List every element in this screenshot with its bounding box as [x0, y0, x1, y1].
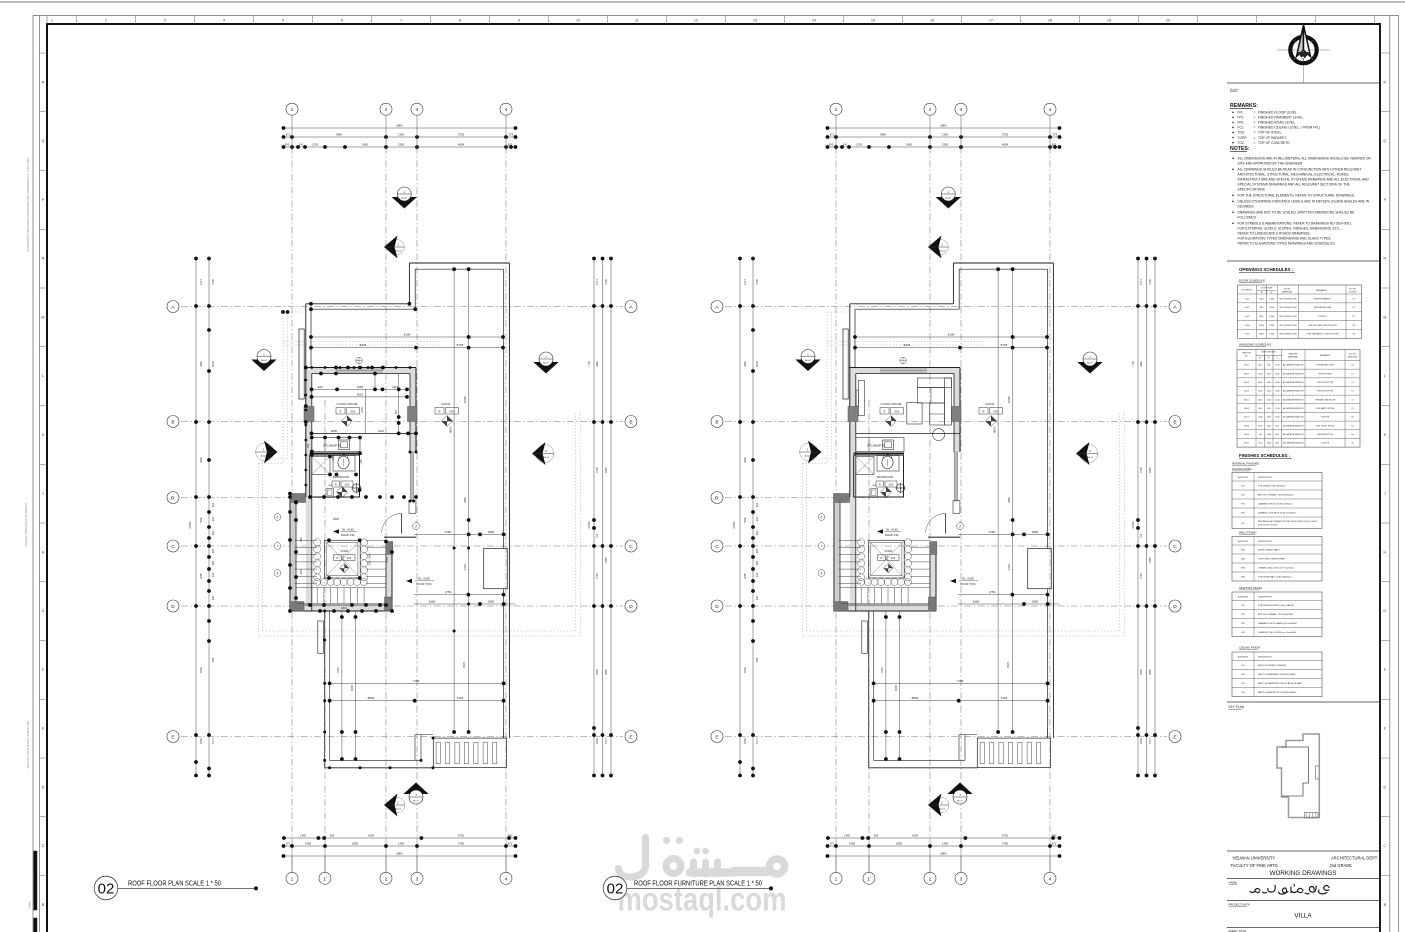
- svg-text:ALUMINIUM WINDOW: ALUMINIUM WINDOW: [1283, 364, 1304, 367]
- svg-text:1500: 1500: [1259, 325, 1265, 327]
- svg-text:17: 17: [989, 18, 993, 22]
- svg-text:2000: 2000: [1258, 382, 1263, 384]
- svg-text:03: 03: [1351, 443, 1354, 445]
- svg-text:=: =: [1254, 131, 1256, 135]
- svg-text:TOP OF PARAPET.: TOP OF PARAPET.: [1258, 136, 1287, 140]
- svg-text:DESCRIPTION: DESCRIPTION: [1258, 596, 1272, 598]
- svg-text:NAME:: NAME:: [1229, 881, 1238, 885]
- svg-text:MATERIAL: MATERIAL: [1282, 291, 1293, 294]
- svg-text:ARCHITECTURAL, STRUCTURAL, M: ARCHITECTURAL, STRUCTURAL, MECHANICAL, E…: [1238, 173, 1350, 177]
- svg-text:LIGHT GREY CEMENT PAINT: LIGHT GREY CEMENT PAINT: [1258, 558, 1286, 561]
- svg-text:(FOR ROOF FLOOR): (FOR ROOF FLOOR): [1258, 524, 1278, 526]
- svg-text:D-05: D-05: [1245, 334, 1251, 336]
- svg-text:02: 02: [1351, 425, 1354, 427]
- svg-text:NOTES:: NOTES:: [1230, 146, 1250, 152]
- svg-text:ACRONYM: ACRONYM: [1238, 476, 1249, 479]
- svg-text:ACRONYM: ACRONYM: [1238, 595, 1249, 598]
- svg-text:C02: C02: [1241, 674, 1246, 676]
- svg-text:TOC: TOC: [1238, 141, 1246, 145]
- svg-text:THE BEDROOMS: THE BEDROOMS: [1313, 307, 1331, 309]
- svg-text:D-01: D-01: [1245, 298, 1251, 300]
- svg-text:FINISHES SCHEDULES :: FINISHES SCHEDULES :: [1239, 453, 1291, 458]
- svg-text:600: 600: [1259, 365, 1263, 367]
- svg-text:TOP OF CONCRETE.: TOP OF CONCRETE.: [1258, 141, 1291, 145]
- svg-text:TOS: TOS: [1238, 131, 1246, 135]
- svg-text:FOR TERRACE, LIVING ROOM: FOR TERRACE, LIVING ROOM: [1307, 333, 1339, 336]
- svg-text:2: 2: [105, 18, 107, 22]
- svg-text:1700: 1700: [1275, 408, 1280, 410]
- svg-text:LAMINATED WOOD BASE (10)cm HEI: LAMINATED WOOD BASE (10)cm HEIGHT: [1258, 622, 1298, 625]
- svg-text:L: L: [42, 374, 44, 378]
- svg-text:WOODEN DOOR: WOODEN DOOR: [1279, 325, 1297, 327]
- svg-text:1950: 1950: [357, 385, 364, 389]
- svg-text:W04: W04: [1241, 577, 1246, 579]
- svg-text:04: 04: [1351, 365, 1354, 367]
- svg-text:800: 800: [1259, 408, 1263, 410]
- svg-text:F03: F03: [1241, 504, 1245, 506]
- svg-text:01: 01: [1353, 298, 1356, 300]
- svg-text:02: 02: [98, 881, 115, 898]
- svg-text:700: 700: [1259, 434, 1263, 436]
- svg-text:DOORS: DOORS: [1349, 292, 1357, 294]
- svg-text:Sheet size: ISO A0 (841.00 x: Sheet size: ISO A0 (841.00 x 1189.00 MM): [27, 721, 30, 769]
- svg-text:SPECIFICATIONS.: SPECIFICATIONS.: [1238, 188, 1266, 192]
- svg-text:REFER TO ELEVATIONS TYPES DRAW: REFER TO ELEVATIONS TYPES DRAWINGS AND S…: [1238, 242, 1336, 246]
- svg-text:Plotted by: Mahmoud Ashraf Mah: Plotted by: Mahmoud Ashraf Mahmoud: [25, 503, 28, 547]
- svg-text:WINDOW: WINDOW: [1242, 353, 1251, 355]
- svg-text:HELWAN UNIVERSITY: HELWAN UNIVERSITY: [1233, 856, 1276, 861]
- svg-text:S04: S04: [1241, 632, 1245, 634]
- svg-text:ALL DRAWINGS SHOULD BE READ IN: ALL DRAWINGS SHOULD BE READ IN CONJUNCTI…: [1238, 168, 1362, 172]
- svg-text:W02: W02: [1241, 559, 1246, 561]
- svg-text:WHITE CEMENT PAINT: WHITE CEMENT PAINT: [1258, 549, 1280, 552]
- svg-text:FINISHED CEILING LEVEL. ( FROM: FINISHED CEILING LEVEL. ( FROM FFL): [1258, 126, 1320, 130]
- svg-text:S03: S03: [1241, 623, 1245, 625]
- svg-text:VILLA: VILLA: [1294, 913, 1312, 920]
- svg-text:900: 900: [1260, 307, 1264, 309]
- svg-text:THE KITCHEN: THE KITCHEN: [1318, 373, 1332, 375]
- svg-text:WOODEN DOOR: WOODEN DOOR: [1279, 334, 1297, 336]
- svg-text:2110: 2110: [378, 429, 384, 433]
- svg-text:WALL FINISH: WALL FINISH: [1239, 531, 1256, 535]
- svg-text:PAINT ON FIREPROOF GYPSUM BOAR: PAINT ON FIREPROOF GYPSUM BOARD: [1258, 691, 1297, 694]
- svg-text:8: 8: [459, 18, 461, 22]
- svg-text:W-06: W-06: [1244, 408, 1250, 410]
- svg-text:=: =: [1254, 121, 1256, 125]
- svg-text:1000: 1000: [1275, 382, 1280, 384]
- svg-text:C: C: [42, 844, 45, 848]
- svg-text:07: 07: [1353, 307, 1356, 309]
- svg-text:1180: 1180: [300, 537, 303, 543]
- svg-text:E: E: [1384, 727, 1387, 731]
- svg-text:1700: 1700: [1275, 365, 1280, 367]
- svg-text:FOR BATHROOMS: FOR BATHROOMS: [1316, 364, 1334, 367]
- svg-text:ACRONYM: ACRONYM: [1238, 655, 1249, 658]
- svg-text:REMARKS:: REMARKS:: [1230, 103, 1258, 109]
- svg-text:2400: 2400: [1269, 298, 1275, 300]
- svg-text:THE ENTRANCE: THE ENTRANCE: [1314, 297, 1332, 300]
- svg-text:=: =: [1254, 111, 1256, 115]
- svg-text:OPENINGS SCHEDULES :: OPENINGS SCHEDULES :: [1239, 267, 1294, 272]
- svg-text:=: =: [1254, 141, 1256, 145]
- svg-text:FCL: FCL: [1238, 126, 1244, 130]
- svg-text:2440: 2440: [386, 557, 389, 563]
- svg-text:M: M: [42, 315, 45, 319]
- svg-text:DRAWINGS ARE NOT TO BE SCALED,: DRAWINGS ARE NOT TO BE SCALED, WRITTEN D…: [1238, 211, 1356, 215]
- svg-text:W: W: [1261, 292, 1263, 294]
- svg-text:1000: 1000: [1275, 417, 1280, 419]
- svg-text:16: 16: [930, 18, 934, 22]
- svg-text:STAMPED TILES, (10X30)cm, 10cm: STAMPED TILES, (10X30)cm, 10cm HIGH: [1258, 631, 1297, 634]
- svg-text:755: 755: [307, 443, 310, 448]
- svg-text:1200: 1200: [1267, 391, 1272, 393]
- svg-text:ALUMINIUM WINDOW: ALUMINIUM WINDOW: [1283, 407, 1304, 410]
- svg-text:WORKING DRAWINGS: WORKING DRAWINGS: [1270, 870, 1337, 877]
- svg-text:F: F: [42, 668, 44, 672]
- svg-text:W-01: W-01: [1244, 365, 1250, 367]
- svg-text:N: N: [42, 257, 45, 261]
- svg-text:WOODEN DOOR: WOODEN DOOR: [1279, 316, 1297, 318]
- svg-text:1400: 1400: [1267, 434, 1272, 436]
- svg-text:NO OF: NO OF: [1349, 354, 1356, 356]
- svg-text:C: C: [1384, 844, 1387, 848]
- svg-text:F01: F01: [1241, 486, 1245, 488]
- svg-text:RECTANGULAR GRANITE STONE TILE: RECTANGULAR GRANITE STONE TILES (30X60) …: [1258, 520, 1318, 523]
- svg-text:1000: 1000: [1258, 373, 1263, 375]
- svg-text:1200: 1200: [1267, 382, 1272, 384]
- svg-text:5: 5: [282, 18, 284, 22]
- svg-text:K: K: [1384, 433, 1387, 437]
- svg-text:=: =: [1254, 136, 1256, 140]
- svg-text:1000: 1000: [1275, 391, 1280, 393]
- svg-text:1200: 1200: [1267, 417, 1272, 419]
- svg-text:LAMINATED WOOD TILES (10X60)cm: LAMINATED WOOD TILES (10X60)cm: [1258, 503, 1293, 506]
- svg-text:H: H: [1268, 357, 1270, 359]
- svg-text:ROOF FLOOR PLAN SCALE 1 * 50: ROOF FLOOR PLAN SCALE 1 * 50: [128, 879, 221, 888]
- svg-text:07: 07: [1353, 316, 1356, 318]
- svg-text:ALUMINIUM WINDOW: ALUMINIUM WINDOW: [1283, 398, 1304, 401]
- svg-text:THE EAST BEDROOM: THE EAST BEDROOM: [1315, 398, 1336, 401]
- svg-text:F: F: [1384, 668, 1386, 672]
- svg-text:ANTI SLIP CERAMIC TILES SKIRTI: ANTI SLIP CERAMIC TILES SKIRTING: [1258, 613, 1294, 616]
- svg-text:PORCELAIN WALL TILES (30X60)cm: PORCELAIN WALL TILES (30X60)cm: [1258, 576, 1292, 579]
- svg-text:FOR ELEVATIONS TYPES DIMENSION: FOR ELEVATIONS TYPES DIMENSIONS AND GLAS…: [1238, 237, 1332, 241]
- svg-text:1000: 1000: [1259, 298, 1265, 300]
- svg-text:W-10: W-10: [1244, 443, 1250, 445]
- svg-text:2400: 2400: [1269, 307, 1275, 309]
- svg-text:WINDOWS SCHEDULE: WINDOWS SCHEDULE: [1239, 343, 1271, 347]
- svg-text:1200: 1200: [1267, 399, 1272, 401]
- svg-text:M: M: [1383, 315, 1386, 319]
- svg-text:3: 3: [164, 18, 166, 22]
- svg-text:B: B: [42, 903, 45, 907]
- svg-text:01: 01: [1351, 373, 1354, 375]
- svg-text:800: 800: [1276, 425, 1280, 427]
- svg-text:D-03: D-03: [1245, 316, 1251, 318]
- svg-text:INTERNAL FINISHES: INTERNAL FINISHES: [1232, 462, 1260, 466]
- svg-text:W-09: W-09: [1244, 434, 1250, 436]
- svg-text:REMARKS: REMARKS: [1320, 354, 1331, 357]
- svg-text:50mm: 50mm: [30, 902, 32, 908]
- svg-text:FOR EXTERNAL LEVELS, SLOPES, F: FOR EXTERNAL LEVELS, SLOPES, FINISHES, D…: [1238, 227, 1343, 231]
- svg-text:J: J: [1384, 492, 1386, 496]
- svg-text:C03: C03: [1241, 683, 1246, 685]
- svg-text:1500: 1500: [1258, 417, 1263, 419]
- svg-text:2400: 2400: [1259, 334, 1265, 336]
- svg-text:1801: 1801: [341, 606, 347, 610]
- svg-text:1000: 1000: [1275, 373, 1280, 375]
- svg-text:FFL: FFL: [1238, 111, 1244, 115]
- svg-text:02: 02: [607, 881, 624, 898]
- svg-text:FOR RECEPTION: FOR RECEPTION: [1317, 434, 1334, 436]
- svg-text:ALUMINIUM WINDOW: ALUMINIUM WINDOW: [1283, 433, 1304, 436]
- svg-text:FPL: FPL: [1238, 116, 1244, 120]
- svg-text:WINDOW SIZE: WINDOW SIZE: [1262, 352, 1276, 354]
- svg-text:ARCHITECTURAL DEPT.: ARCHITECTURAL DEPT.: [1331, 856, 1378, 861]
- svg-text:FINISHED FLOOR LEVEL.: FINISHED FLOOR LEVEL.: [1258, 111, 1298, 115]
- svg-text:2400: 2400: [1269, 316, 1275, 318]
- svg-text:1: 1: [51, 18, 53, 22]
- svg-text:D: D: [1384, 785, 1387, 789]
- svg-text:D-02: D-02: [1245, 307, 1251, 309]
- svg-text:NO.: NO.: [1245, 356, 1249, 358]
- svg-text:Notes:: Notes:: [1230, 88, 1239, 92]
- svg-text:FACULTY OF FINE ARTS: FACULTY OF FINE ARTS: [1231, 863, 1278, 868]
- svg-text:10: 10: [576, 18, 580, 22]
- svg-text:2400: 2400: [1269, 325, 1275, 327]
- svg-text:ALUMINIUM WINDOW: ALUMINIUM WINDOW: [1283, 442, 1304, 445]
- svg-text:B: B: [1384, 903, 1387, 907]
- svg-text:L: L: [1384, 374, 1386, 378]
- svg-text:DOOR SIZE: DOOR SIZE: [1261, 288, 1273, 290]
- svg-text:REFER TO LANDSCAPE & ROADS DRA: REFER TO LANDSCAPE & ROADS DRAWINGS.: [1238, 232, 1311, 236]
- svg-text:KEY PLAN: KEY PLAN: [1229, 705, 1245, 709]
- svg-text:ALUMINIUM WINDOW: ALUMINIUM WINDOW: [1283, 424, 1304, 427]
- svg-text:01: 01: [1351, 408, 1354, 410]
- svg-text:CEILING FINISH: CEILING FINISH: [1239, 646, 1260, 650]
- svg-text:01: 01: [1351, 382, 1354, 384]
- svg-text:D-04: D-04: [1245, 325, 1251, 327]
- svg-text:4: 4: [223, 18, 225, 22]
- svg-text:SITE AND APPROVED BY THE ENGIN: SITE AND APPROVED BY THE ENGINEER.: [1238, 162, 1304, 166]
- svg-text:800: 800: [1276, 434, 1280, 436]
- svg-text:15: 15: [871, 18, 875, 22]
- svg-text:PORCELAIN SKIRTING (10)cm HEIG: PORCELAIN SKIRTING (10)cm HEIGHT: [1258, 604, 1295, 607]
- svg-text:R: R: [1384, 80, 1387, 84]
- svg-text:2176: 2176: [361, 407, 364, 413]
- svg-text:11: 11: [635, 18, 639, 22]
- svg-text:=: =: [1254, 126, 1256, 130]
- svg-text:=: =: [1254, 116, 1256, 120]
- svg-text:SKIRTING FINISH: SKIRTING FINISH: [1239, 586, 1262, 590]
- svg-text:C04: C04: [1241, 692, 1246, 694]
- svg-text:WINDOW: WINDOW: [1289, 354, 1298, 356]
- svg-text:FOR THE STRUCTURAL ELEMENTS, R: FOR THE STRUCTURAL ELEMENTS, REFER TO ST…: [1238, 194, 1355, 198]
- svg-text:19: 19: [1107, 18, 1111, 22]
- svg-text:Q: Q: [42, 139, 45, 143]
- svg-text:ALUMINIUM WINDOW: ALUMINIUM WINDOW: [1283, 372, 1304, 375]
- svg-text:1400: 1400: [1267, 443, 1272, 445]
- svg-text:F02: F02: [1241, 495, 1245, 497]
- svg-text:THE KITCHEN, RECEPTION: THE KITCHEN, RECEPTION: [1308, 325, 1337, 327]
- svg-text:J: J: [42, 492, 44, 496]
- svg-text:FOR MAID'S ROOM: FOR MAID'S ROOM: [1316, 407, 1335, 410]
- svg-text:PAINT ON CEMENT PLASTER: PAINT ON CEMENT PLASTER: [1258, 664, 1286, 667]
- svg-text:W-07: W-07: [1244, 417, 1250, 419]
- svg-text:1200: 1200: [1267, 373, 1272, 375]
- svg-text:04: 04: [1351, 434, 1354, 436]
- svg-text:G: G: [1383, 609, 1386, 613]
- svg-text:2440: 2440: [300, 569, 303, 575]
- svg-text:2500: 2500: [1258, 391, 1263, 393]
- svg-text:800: 800: [1260, 316, 1264, 318]
- svg-text:FOR RECEPTION: FOR RECEPTION: [1317, 391, 1334, 393]
- svg-text:500: 500: [1267, 408, 1271, 410]
- svg-text:02: 02: [1351, 399, 1354, 401]
- svg-text:14: 14: [812, 18, 816, 22]
- svg-text:03: 03: [1353, 334, 1356, 336]
- svg-text:S02: S02: [1241, 614, 1245, 616]
- svg-text:13: 13: [753, 18, 757, 22]
- svg-text:N: N: [1384, 257, 1387, 261]
- svg-text:1800: 1800: [333, 517, 339, 521]
- svg-text:TOILETS: TOILETS: [1321, 443, 1330, 445]
- svg-text:600: 600: [395, 409, 398, 414]
- svg-text:ACRONYM: ACRONYM: [1238, 540, 1249, 543]
- svg-text:FOR LIVING ROOM: FOR LIVING ROOM: [1316, 425, 1334, 427]
- svg-text:F04: F04: [1241, 513, 1245, 515]
- svg-text:INFRASTRUCTURE AND SPECIAL SYS: INFRASTRUCTURE AND SPECIAL SYSTEMS DRAWI…: [1238, 178, 1370, 182]
- svg-text:500: 500: [1267, 365, 1271, 367]
- svg-text:DOOR SCHEDULE: DOOR SCHEDULE: [1239, 279, 1265, 283]
- svg-text:H: H: [42, 550, 45, 554]
- svg-text:01: 01: [1351, 391, 1354, 393]
- svg-text:900: 900: [1259, 443, 1263, 445]
- svg-text:NO OF: NO OF: [1349, 288, 1356, 290]
- svg-text:FOR SYMBOLS & ABBREVIATIONS, R: FOR SYMBOLS & ABBREVIATIONS, REFER TO DR…: [1238, 222, 1353, 226]
- svg-text:WINDOWS: WINDOWS: [1348, 357, 1358, 359]
- svg-text:FINISHED ROAD LEVEL.: FINISHED ROAD LEVEL.: [1258, 121, 1296, 125]
- svg-text:ALL DIMENSIONS ARE IN MILLIMET: ALL DIMENSIONS ARE IN MILLIMETERS, ALL D…: [1238, 157, 1372, 161]
- svg-text:ANTI SLIP CERAMIC TILES (40X40: ANTI SLIP CERAMIC TILES (40X40)cm: [1258, 494, 1294, 497]
- svg-text:UNLESS OTHERWISE INDICATED LEV: UNLESS OTHERWISE INDICATED LEVELS ARE IN…: [1238, 200, 1370, 204]
- svg-text:W-05: W-05: [1244, 399, 1250, 401]
- svg-text:DOOR NO.: DOOR NO.: [1241, 290, 1252, 292]
- svg-text:TOILETS: TOILETS: [1318, 316, 1328, 318]
- svg-text:2400: 2400: [1269, 334, 1275, 336]
- svg-text:FOLLOWED.: FOLLOWED.: [1238, 216, 1258, 220]
- svg-text:PROJECT DATA:: PROJECT DATA:: [1229, 903, 1251, 907]
- svg-text:W-02: W-02: [1244, 373, 1250, 375]
- svg-text:ALUMINIUM WINDOW: ALUMINIUM WINDOW: [1283, 390, 1304, 393]
- svg-text:CERAMIC WALL TILES, UP TO (220: CERAMIC WALL TILES, UP TO (220)cm: [1258, 567, 1294, 570]
- svg-text:ROOF FLOOR FURNITURE PLAN SCAL: ROOF FLOOR FURNITURE PLAN SCALE 1 * 50: [634, 879, 762, 888]
- svg-text:REMARKS: REMARKS: [1316, 289, 1327, 292]
- svg-text:2000: 2000: [1258, 425, 1263, 427]
- svg-text:2190: 2190: [332, 455, 335, 461]
- svg-text:ALUMINIUM WINDOW: ALUMINIUM WINDOW: [1283, 381, 1304, 384]
- svg-text:200: 200: [318, 385, 323, 389]
- svg-text:ALUMINIUM WINDOW: ALUMINIUM WINDOW: [1283, 416, 1304, 419]
- svg-text:1750 / 1960: 1750 / 1960: [369, 553, 372, 566]
- svg-text:MATERIAL: MATERIAL: [1288, 356, 1299, 359]
- svg-text:S: S: [1277, 357, 1279, 359]
- svg-text:TOILETS: TOILETS: [1321, 417, 1330, 419]
- svg-text:12: 12: [694, 18, 698, 22]
- svg-text:PAINT ON WATERPROOFED PLASTER: PAINT ON WATERPROOFED PLASTER BOARD: [1258, 682, 1303, 685]
- svg-text:W01: W01: [1241, 550, 1246, 552]
- svg-text:DOOR: DOOR: [1284, 289, 1291, 291]
- svg-text:3000: 3000: [1258, 399, 1263, 401]
- svg-text:TOPR: TOPR: [1238, 136, 1248, 140]
- svg-text:W: W: [1259, 357, 1261, 359]
- svg-text:FRL: FRL: [1238, 121, 1244, 125]
- svg-text:FINISHED PAVEMENT LEVEL.: FINISHED PAVEMENT LEVEL.: [1258, 116, 1304, 120]
- svg-text:20: 20: [1166, 18, 1170, 22]
- svg-text:STAMPED CONCRETE TILES, (30X30: STAMPED CONCRETE TILES, (30X30)cm: [1258, 512, 1297, 515]
- svg-text:SPECIAL SYSTEMS DRAWINGS AND A: SPECIAL SYSTEMS DRAWINGS AND ALL RELEVAN…: [1238, 183, 1351, 187]
- svg-text:800: 800: [1276, 443, 1280, 445]
- svg-text:H: H: [1384, 550, 1387, 554]
- svg-text:K: K: [42, 433, 45, 437]
- svg-text:DESCRIPTION: DESCRIPTION: [1258, 477, 1272, 479]
- svg-text:G: G: [42, 609, 45, 613]
- svg-text:DEGREES.: DEGREES.: [1238, 205, 1255, 209]
- svg-text:S01: S01: [1241, 605, 1245, 607]
- svg-text:WOODEN DOOR: WOODEN DOOR: [1279, 298, 1297, 300]
- svg-text:02: 02: [1351, 417, 1354, 419]
- svg-text:FOR RECEPTION: FOR RECEPTION: [1317, 382, 1334, 384]
- svg-text:WOODEN DOOR: WOODEN DOOR: [1279, 307, 1297, 309]
- svg-text:P: P: [42, 198, 45, 202]
- svg-text:W-03: W-03: [1244, 382, 1250, 384]
- svg-text:1138: 1138: [360, 459, 363, 465]
- svg-text:W-04: W-04: [1244, 391, 1250, 393]
- svg-text:PORCELAIN TILES (60X60)cm: PORCELAIN TILES (60X60)cm: [1258, 485, 1286, 488]
- svg-text:2nd GRADE: 2nd GRADE: [1329, 863, 1352, 868]
- svg-text:DESCRIPTION: DESCRIPTION: [1258, 656, 1272, 658]
- svg-text:6: 6: [341, 18, 343, 22]
- svg-text:F05: F05: [1241, 523, 1245, 525]
- svg-text:PAINT ON STANDARD GYPSUM BOARD: PAINT ON STANDARD GYPSUM BOARD: [1258, 673, 1296, 676]
- svg-text:Q: Q: [1383, 139, 1386, 143]
- svg-text:D:\UNIVERSITY WORKS\2ND GRADE\: D:\UNIVERSITY WORKS\2ND GRADE\WORKING DR…: [27, 158, 30, 252]
- svg-text:TOP OF STEEL.: TOP OF STEEL.: [1258, 131, 1283, 135]
- svg-text:02: 02: [1353, 325, 1356, 327]
- svg-text:FLOOR FINISH: FLOOR FINISH: [1232, 467, 1252, 471]
- svg-text:R: R: [42, 80, 45, 84]
- svg-text:W-08: W-08: [1244, 425, 1250, 427]
- svg-text:7: 7: [400, 18, 402, 22]
- svg-text:D: D: [42, 785, 45, 789]
- svg-text:C01: C01: [1241, 665, 1246, 667]
- svg-text:18: 18: [1048, 18, 1052, 22]
- svg-text:1000: 1000: [1275, 399, 1280, 401]
- svg-text:2800: 2800: [331, 429, 338, 433]
- svg-text:1400: 1400: [1267, 425, 1272, 427]
- svg-text:9: 9: [518, 18, 520, 22]
- svg-text:4210: 4210: [357, 392, 364, 396]
- svg-text:W03: W03: [1241, 568, 1246, 570]
- svg-text:DESCRIPTION: DESCRIPTION: [1258, 541, 1272, 543]
- svg-text:E: E: [42, 727, 45, 731]
- svg-text:P: P: [1384, 198, 1387, 202]
